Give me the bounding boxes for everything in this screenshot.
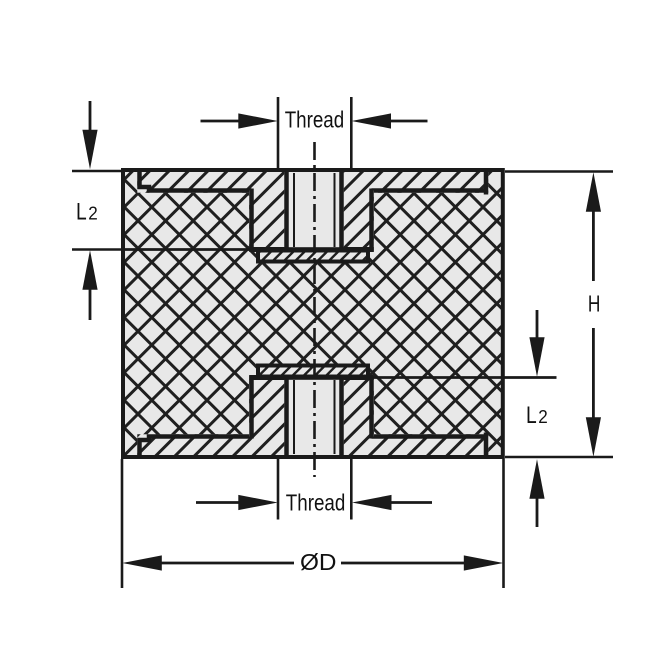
svg-text:Thread: Thread: [285, 107, 345, 133]
svg-text:ØD: ØD: [300, 549, 337, 575]
svg-text:2: 2: [88, 203, 98, 224]
svg-text:2: 2: [538, 406, 548, 427]
svg-text:Thread: Thread: [286, 490, 346, 516]
svg-text:L: L: [76, 199, 87, 226]
svg-text:H: H: [588, 290, 601, 316]
svg-text:L: L: [526, 402, 537, 429]
